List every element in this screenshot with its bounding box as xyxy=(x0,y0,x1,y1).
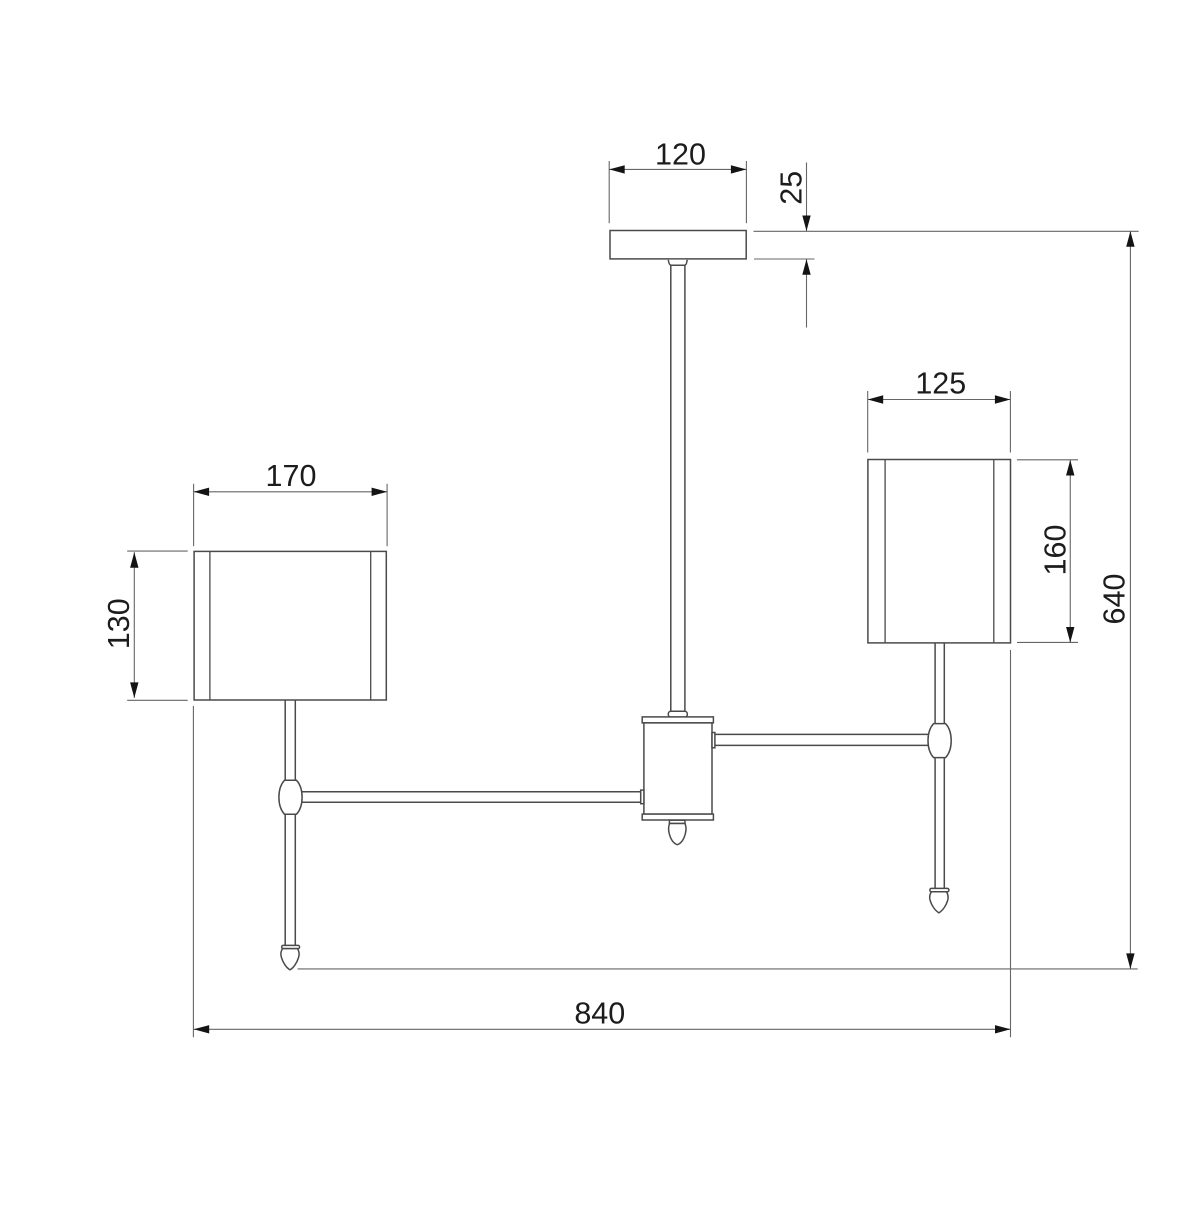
svg-text:130: 130 xyxy=(102,598,136,649)
svg-text:170: 170 xyxy=(266,459,317,493)
svg-text:640: 640 xyxy=(1097,574,1131,625)
svg-text:125: 125 xyxy=(915,366,966,400)
svg-text:840: 840 xyxy=(574,997,625,1031)
svg-text:120: 120 xyxy=(655,137,706,171)
svg-text:160: 160 xyxy=(1038,525,1072,576)
svg-text:25: 25 xyxy=(774,171,808,205)
